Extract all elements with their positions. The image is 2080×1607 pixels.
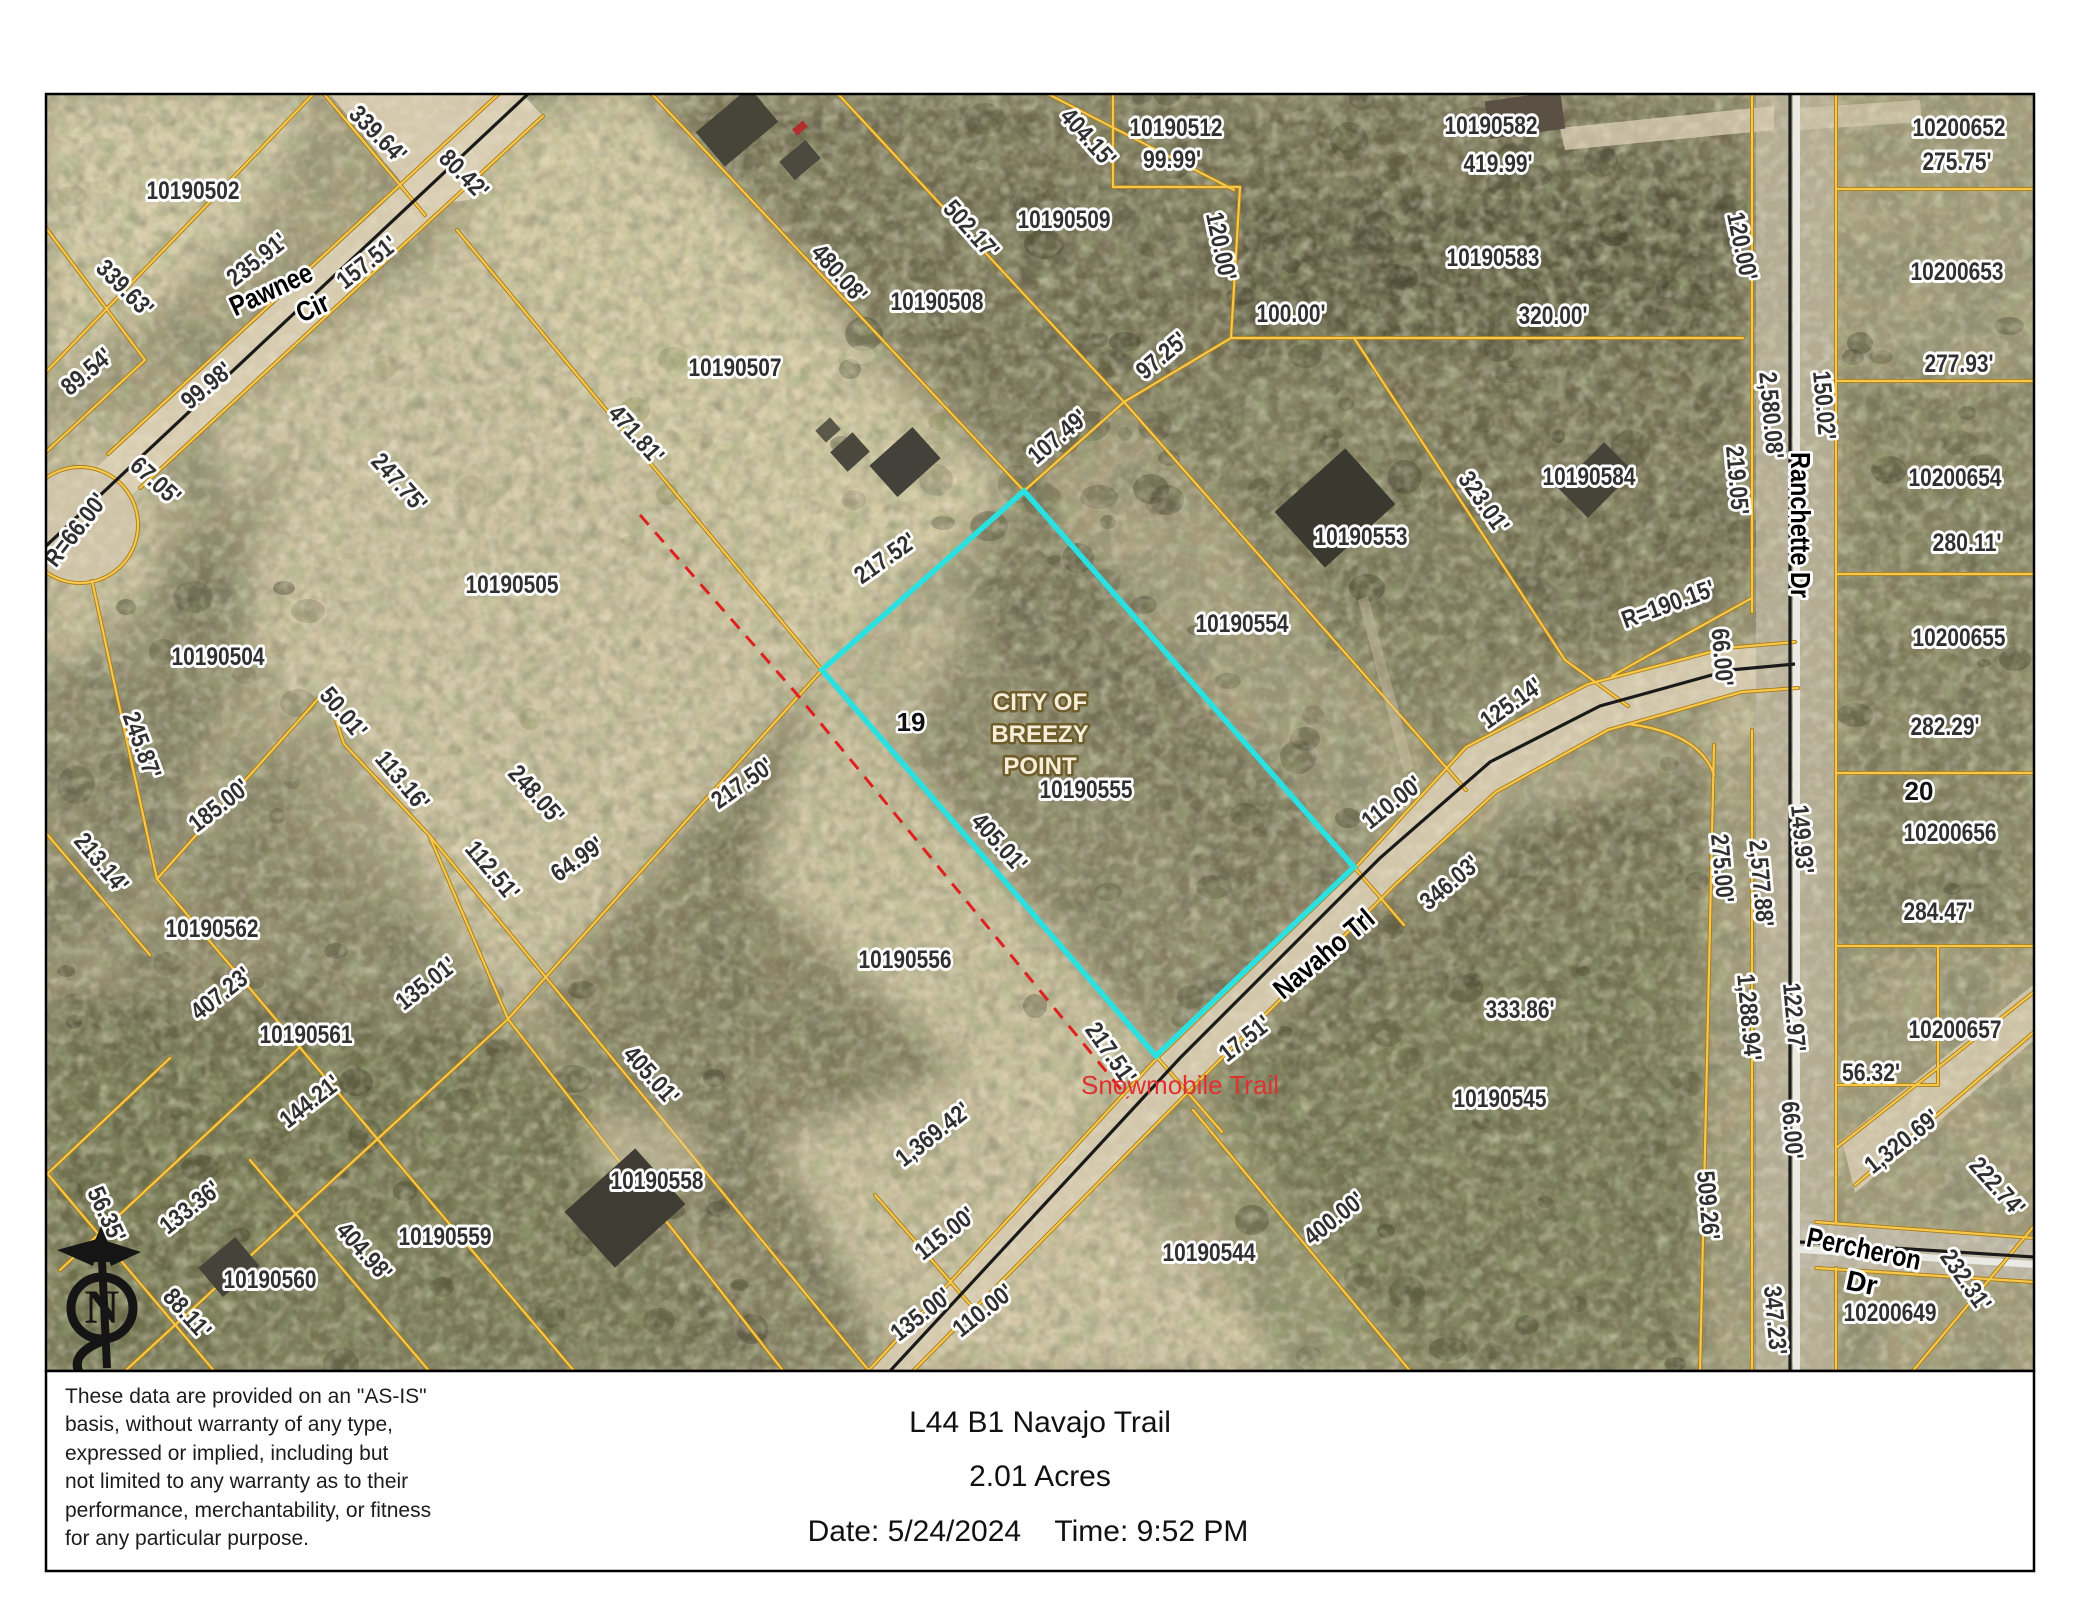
svg-text:10190512: 10190512: [1130, 114, 1223, 142]
svg-text:10200653: 10200653: [1911, 258, 2004, 286]
svg-text:for any particular purpose.: for any particular purpose.: [65, 1527, 309, 1550]
svg-text:2.01 Acres: 2.01 Acres: [969, 1460, 1111, 1493]
svg-text:333.86': 333.86': [1486, 996, 1555, 1024]
svg-text:POINT: POINT: [1003, 753, 1077, 780]
svg-text:100.00': 100.00': [1257, 300, 1326, 328]
svg-text:282.29': 282.29': [1911, 713, 1980, 741]
svg-text:CITY OF: CITY OF: [993, 689, 1087, 716]
svg-text:275.00': 275.00': [1705, 833, 1739, 904]
svg-text:N: N: [85, 1281, 120, 1334]
svg-text:L44 B1 Navajo Trail: L44 B1 Navajo Trail: [909, 1406, 1171, 1439]
svg-text:10190507: 10190507: [689, 354, 782, 382]
svg-text:20: 20: [1905, 776, 1934, 806]
svg-text:56.32': 56.32': [1842, 1059, 1900, 1087]
svg-text:66.00': 66.00': [1775, 1100, 1808, 1160]
svg-text:10190582: 10190582: [1445, 112, 1538, 140]
svg-text:performance, merchantability,: performance, merchantability, or fitness: [65, 1499, 431, 1522]
svg-text:BREEZY: BREEZY: [991, 721, 1088, 748]
svg-text:149.93': 149.93': [1785, 804, 1819, 875]
svg-text:10200656: 10200656: [1904, 819, 1997, 847]
svg-text:Date: 5/24/2024 Time: 9:52: Date: 5/24/2024 Time: 9:52 PM: [808, 1515, 1249, 1548]
svg-text:These data are provided on an: These data are provided on an "AS-IS": [65, 1385, 427, 1408]
svg-text:10190561: 10190561: [260, 1021, 353, 1049]
svg-text:10190502: 10190502: [147, 177, 240, 205]
svg-text:10190553: 10190553: [1315, 523, 1408, 551]
svg-text:10200649: 10200649: [1844, 1299, 1937, 1327]
svg-text:expressed or implied, includin: expressed or implied, including but: [65, 1442, 389, 1465]
svg-text:10190584: 10190584: [1543, 463, 1636, 491]
svg-text:419.99': 419.99': [1464, 150, 1533, 178]
svg-text:99.99': 99.99': [1143, 146, 1201, 174]
svg-text:19: 19: [897, 707, 926, 737]
svg-text:10200652: 10200652: [1913, 114, 2006, 142]
svg-text:280.11': 280.11': [1933, 529, 2002, 557]
svg-text:509.26': 509.26': [1691, 1170, 1725, 1241]
svg-text:basis, without warranty of any: basis, without warranty of any type,: [65, 1413, 393, 1436]
svg-text:320.00': 320.00': [1519, 302, 1588, 330]
svg-text:10200655: 10200655: [1913, 624, 2006, 652]
svg-text:10200654: 10200654: [1909, 464, 2002, 492]
svg-text:284.47': 284.47': [1904, 898, 1973, 926]
svg-text:Dr: Dr: [1843, 1265, 1880, 1302]
svg-text:10190544: 10190544: [1163, 1239, 1256, 1267]
svg-text:10190504: 10190504: [172, 643, 265, 671]
svg-text:219.05': 219.05': [1720, 445, 1754, 516]
svg-text:Ranchette Dr: Ranchette Dr: [1785, 452, 1816, 598]
svg-text:10190554: 10190554: [1196, 610, 1289, 638]
svg-text:10190509: 10190509: [1018, 206, 1111, 234]
svg-text:277.93': 277.93': [1925, 350, 1994, 378]
svg-text:275.75': 275.75': [1923, 148, 1992, 176]
svg-text:Snowmobile Trail: Snowmobile Trail: [1081, 1070, 1279, 1100]
svg-text:10190562: 10190562: [166, 915, 259, 943]
svg-text:10190505: 10190505: [466, 571, 559, 599]
svg-text:10190558: 10190558: [611, 1167, 704, 1195]
svg-text:10190508: 10190508: [891, 288, 984, 316]
svg-text:10190556: 10190556: [859, 946, 952, 974]
svg-text:10190559: 10190559: [399, 1223, 492, 1251]
svg-text:not limited to any warranty as: not limited to any warranty as to their: [65, 1470, 408, 1493]
svg-text:66.00': 66.00': [1705, 627, 1738, 687]
svg-text:10190555: 10190555: [1040, 776, 1133, 804]
svg-text:150.02': 150.02': [1807, 370, 1841, 441]
svg-text:122.97': 122.97': [1777, 982, 1811, 1053]
svg-text:347.23': 347.23': [1758, 1285, 1792, 1356]
svg-text:10190583: 10190583: [1447, 244, 1540, 272]
svg-text:10190560: 10190560: [224, 1266, 317, 1294]
svg-text:10200657: 10200657: [1909, 1016, 2002, 1044]
svg-text:10190545: 10190545: [1454, 1085, 1547, 1113]
